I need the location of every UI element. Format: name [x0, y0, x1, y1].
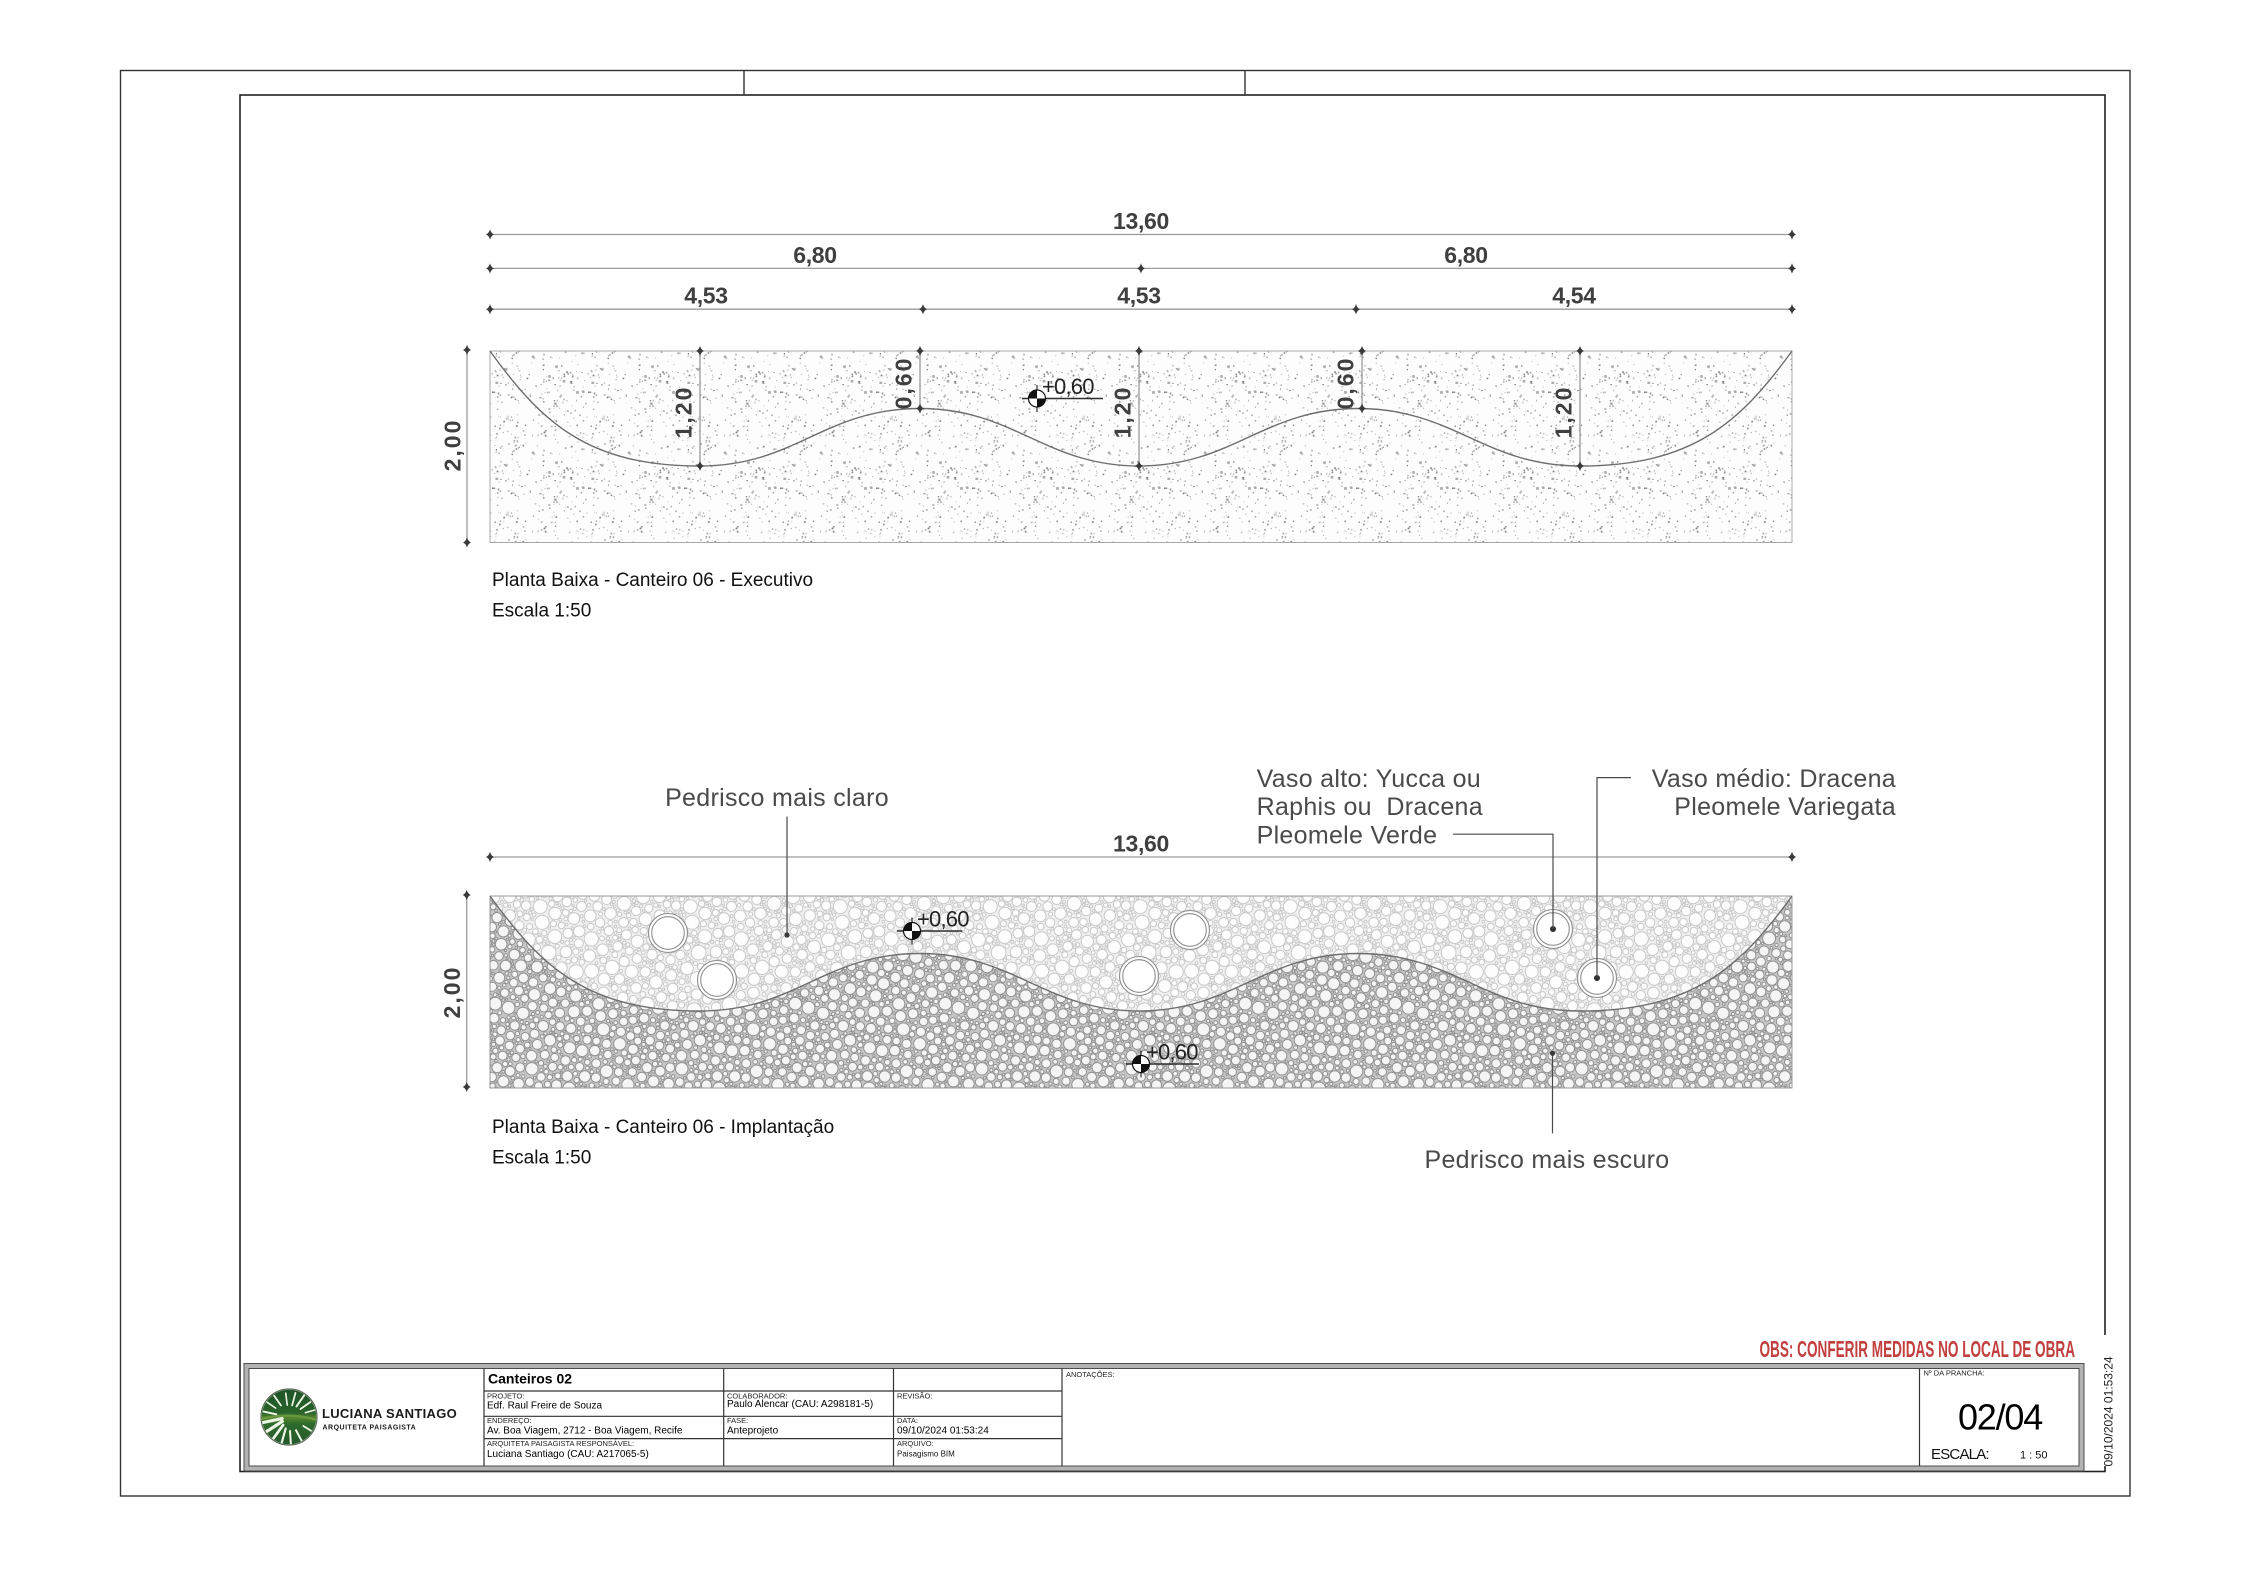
svg-text:+0,60: +0,60 [1042, 374, 1094, 399]
svg-text:Planta Baixa - Canteiro 06 - I: Planta Baixa - Canteiro 06 - Implantação [492, 1117, 834, 1138]
svg-text:4,53: 4,53 [1117, 283, 1161, 309]
svg-text:Anteprojeto: Anteprojeto [727, 1425, 779, 1436]
svg-text:1,20: 1,20 [1110, 386, 1136, 439]
svg-text:OBS: CONFERIR MEDIDAS NO LOCAL: OBS: CONFERIR MEDIDAS NO LOCAL DE OBRA [1759, 1338, 2075, 1364]
svg-text:LUCIANA SANTIAGO: LUCIANA SANTIAGO [322, 1406, 457, 1421]
svg-text:0,60: 0,60 [1333, 357, 1359, 410]
svg-text:1,20: 1,20 [671, 386, 697, 439]
svg-text:Raphis ou Dracena: Raphis ou Dracena [1257, 793, 1483, 821]
svg-text:4,54: 4,54 [1552, 283, 1596, 309]
svg-text:09/10/2024 01:53:24: 09/10/2024 01:53:24 [2102, 1356, 2116, 1466]
svg-text:PROJETO:: PROJETO: [487, 1392, 524, 1401]
svg-text:6,80: 6,80 [1444, 242, 1488, 268]
svg-text:+0,60: +0,60 [1146, 1040, 1198, 1065]
svg-text:1 : 50: 1 : 50 [2020, 1450, 2048, 1462]
svg-text:Pedrisco mais escuro: Pedrisco mais escuro [1425, 1146, 1670, 1174]
svg-text:DATA:: DATA: [897, 1416, 918, 1425]
svg-text:2,00: 2,00 [439, 966, 465, 1019]
svg-text:Av. Boa Viagem, 2712 - Boa Via: Av. Boa Viagem, 2712 - Boa Viagem, Recif… [487, 1425, 683, 1436]
svg-text:2,00: 2,00 [440, 419, 466, 472]
svg-text:Luciana Santiago (CAU: A217065: Luciana Santiago (CAU: A217065-5) [487, 1449, 649, 1460]
svg-text:09/10/2024 01:53:24: 09/10/2024 01:53:24 [897, 1425, 989, 1436]
svg-text:ANOTAÇÕES:: ANOTAÇÕES: [1066, 1370, 1115, 1379]
svg-text:ENDEREÇO:: ENDEREÇO: [487, 1416, 532, 1425]
svg-text:Edf. Raul Freire de Souza: Edf. Raul Freire de Souza [487, 1401, 602, 1412]
svg-text:Vaso médio: Dracena: Vaso médio: Dracena [1652, 765, 1896, 793]
svg-text:ESCALA:: ESCALA: [1931, 1446, 1989, 1463]
svg-text:REVISÃO:: REVISÃO: [897, 1392, 932, 1401]
svg-text:Canteiros 02: Canteiros 02 [488, 1371, 572, 1387]
svg-text:FASE:: FASE: [727, 1416, 748, 1425]
svg-text:1,20: 1,20 [1551, 386, 1577, 439]
svg-text:Nº DA PRANCHA:: Nº DA PRANCHA: [1924, 1369, 1985, 1378]
svg-text:Planta Baixa - Canteiro 06 - E: Planta Baixa - Canteiro 06 - Executivo [492, 570, 813, 591]
svg-text:02/04: 02/04 [1958, 1396, 2042, 1437]
svg-text:Pleomele Verde: Pleomele Verde [1257, 822, 1438, 850]
svg-text:ARQUITETA PAISAGISTA RESPONSÁV: ARQUITETA PAISAGISTA RESPONSÁVEL: [487, 1439, 634, 1448]
svg-text:Pleomele Variegata: Pleomele Variegata [1674, 793, 1896, 821]
svg-text:4,53: 4,53 [684, 283, 728, 309]
svg-text:13,60: 13,60 [1113, 208, 1169, 234]
svg-text:Vaso alto: Yucca ou: Vaso alto: Yucca ou [1257, 765, 1481, 793]
svg-text:Paisagismo BIM: Paisagismo BIM [897, 1450, 955, 1459]
svg-text:Escala 1:50: Escala 1:50 [492, 601, 591, 622]
svg-text:13,60: 13,60 [1113, 831, 1169, 857]
svg-text:Paulo Alencar (CAU: A298181-5): Paulo Alencar (CAU: A298181-5) [727, 1399, 873, 1410]
svg-text:6,80: 6,80 [793, 242, 837, 268]
svg-text:Escala 1:50: Escala 1:50 [492, 1148, 591, 1169]
svg-text:ARQUIVO:: ARQUIVO: [897, 1439, 934, 1448]
svg-text:+0,60: +0,60 [917, 907, 969, 932]
svg-text:0,60: 0,60 [891, 357, 917, 410]
svg-text:ARQUITETA PAISAGISTA: ARQUITETA PAISAGISTA [323, 1425, 417, 1432]
svg-text:Pedrisco mais claro: Pedrisco mais claro [665, 784, 889, 812]
